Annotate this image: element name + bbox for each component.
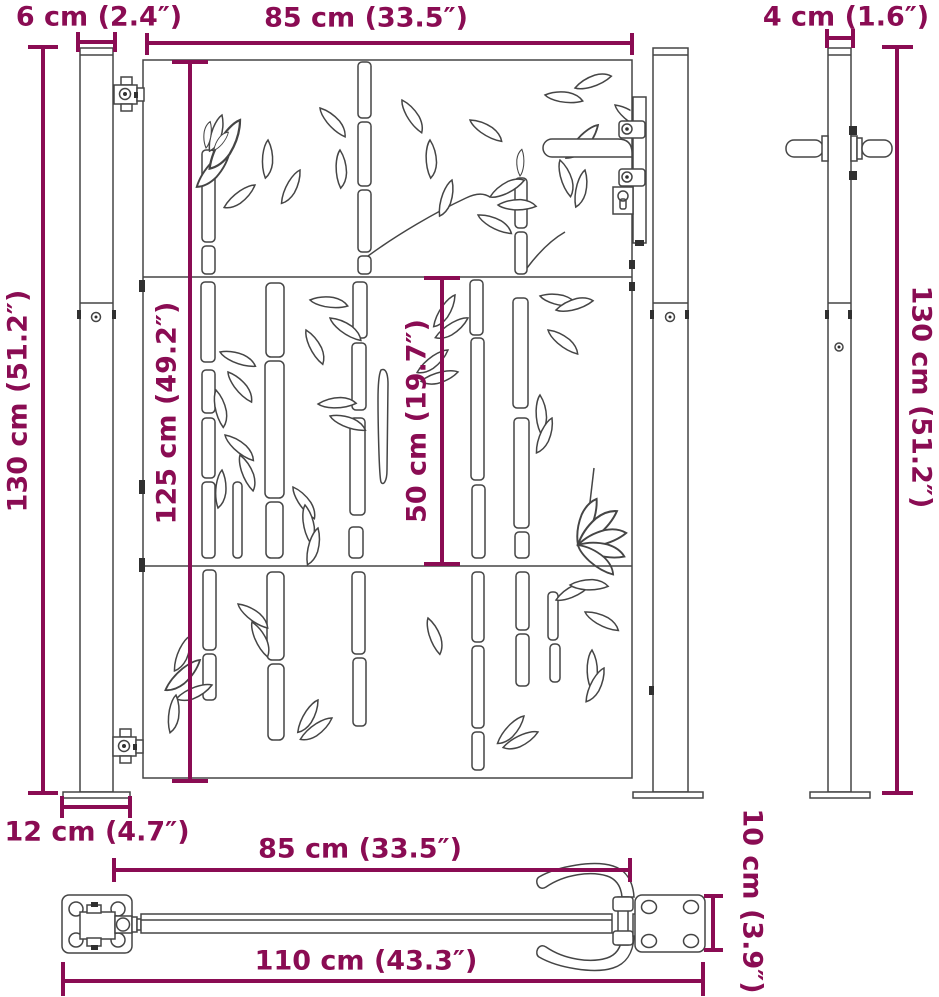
dim-label-post-height-left: 130 cm (51.2″) bbox=[5, 290, 32, 513]
technical-drawing-page: 6 cm (2.4″) 85 cm (33.5″) 4 cm (1.6″) 13… bbox=[0, 0, 939, 997]
right-wall-plate bbox=[635, 895, 705, 952]
dim-line-gate-width-top bbox=[147, 33, 632, 55]
dim-label-overall-width: 110 cm (43.3″) bbox=[255, 948, 478, 975]
bottom-hinge bbox=[113, 729, 143, 763]
dim-line-base-plate-width bbox=[62, 796, 130, 818]
left-wall-plate bbox=[62, 895, 141, 953]
dim-label-post-width-front: 6 cm (2.4″) bbox=[16, 4, 182, 31]
right-post-base-plate bbox=[633, 792, 703, 798]
side-view bbox=[786, 48, 892, 798]
dim-label-post-height-right: 130 cm (51.2″) bbox=[908, 286, 935, 509]
dim-label-panel-height: 50 cm (19.7″) bbox=[404, 319, 431, 523]
dim-label-base-plate-width: 12 cm (4.7″) bbox=[4, 819, 189, 846]
dim-label-gate-width-top: 85 cm (33.5″) bbox=[264, 5, 468, 32]
dim-label-base-plate-depth: 10 cm (3.9″) bbox=[739, 808, 766, 993]
dim-line-base-plate-depth bbox=[704, 896, 723, 950]
left-post-base-plate bbox=[63, 792, 130, 798]
left-post bbox=[63, 48, 130, 798]
dim-label-gate-width-bottom: 85 cm (33.5″) bbox=[258, 836, 462, 863]
side-post-base-plate bbox=[810, 792, 870, 798]
handle-bar bbox=[543, 139, 632, 157]
gate-bar-top-view bbox=[141, 914, 612, 933]
side-post bbox=[828, 48, 851, 792]
dim-label-post-width-side: 4 cm (1.6″) bbox=[763, 4, 929, 31]
top-hinge bbox=[114, 77, 144, 111]
dim-label-gate-height: 125 cm (49.2″) bbox=[154, 302, 181, 525]
